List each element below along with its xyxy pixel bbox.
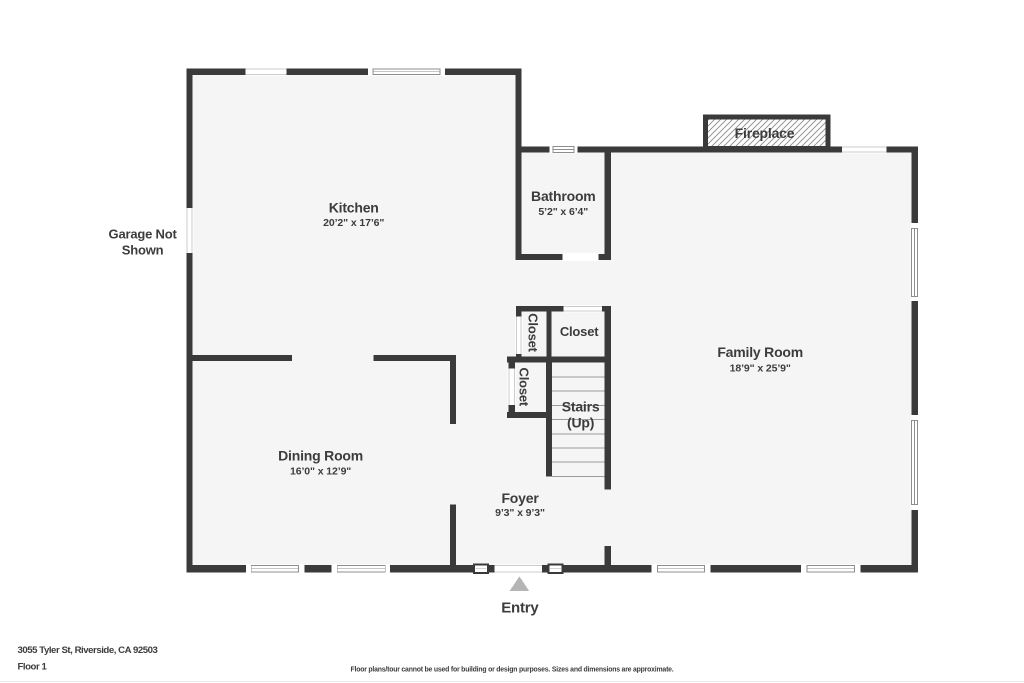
svg-text:Floor 1: Floor 1	[18, 661, 48, 672]
svg-text:Floor plans/tour cannot be use: Floor plans/tour cannot be used for buil…	[350, 667, 673, 674]
svg-text:3055 Tyler St, Riverside, CA 9: 3055 Tyler St, Riverside, CA 92503	[18, 645, 158, 656]
svg-text:16’0" x 12’9": 16’0" x 12’9"	[290, 466, 351, 478]
svg-text:5’2" x 6’4": 5’2" x 6’4"	[538, 206, 588, 218]
svg-text:Kitchen: Kitchen	[329, 199, 379, 215]
svg-text:20’2" x 17’6": 20’2" x 17’6"	[323, 217, 384, 229]
svg-text:Family Room: Family Room	[717, 344, 803, 360]
svg-text:Foyer: Foyer	[501, 490, 539, 506]
svg-text:Closet: Closet	[560, 324, 599, 339]
svg-text:Garage Not: Garage Not	[109, 226, 178, 241]
svg-text:Entry: Entry	[501, 600, 539, 617]
svg-text:18’9" x 25’9": 18’9" x 25’9"	[730, 362, 791, 374]
svg-text:Shown: Shown	[122, 242, 164, 257]
svg-text:Closet: Closet	[517, 368, 532, 407]
svg-text:9’3" x 9’3": 9’3" x 9’3"	[495, 507, 545, 519]
svg-text:Stairs: Stairs	[562, 399, 600, 415]
svg-text:Dining Room: Dining Room	[278, 448, 363, 464]
svg-text:Bathroom: Bathroom	[531, 188, 596, 204]
svg-text:(Up): (Up)	[567, 415, 594, 431]
svg-text:Closet: Closet	[525, 313, 540, 352]
svg-text:Fireplace: Fireplace	[735, 125, 795, 141]
